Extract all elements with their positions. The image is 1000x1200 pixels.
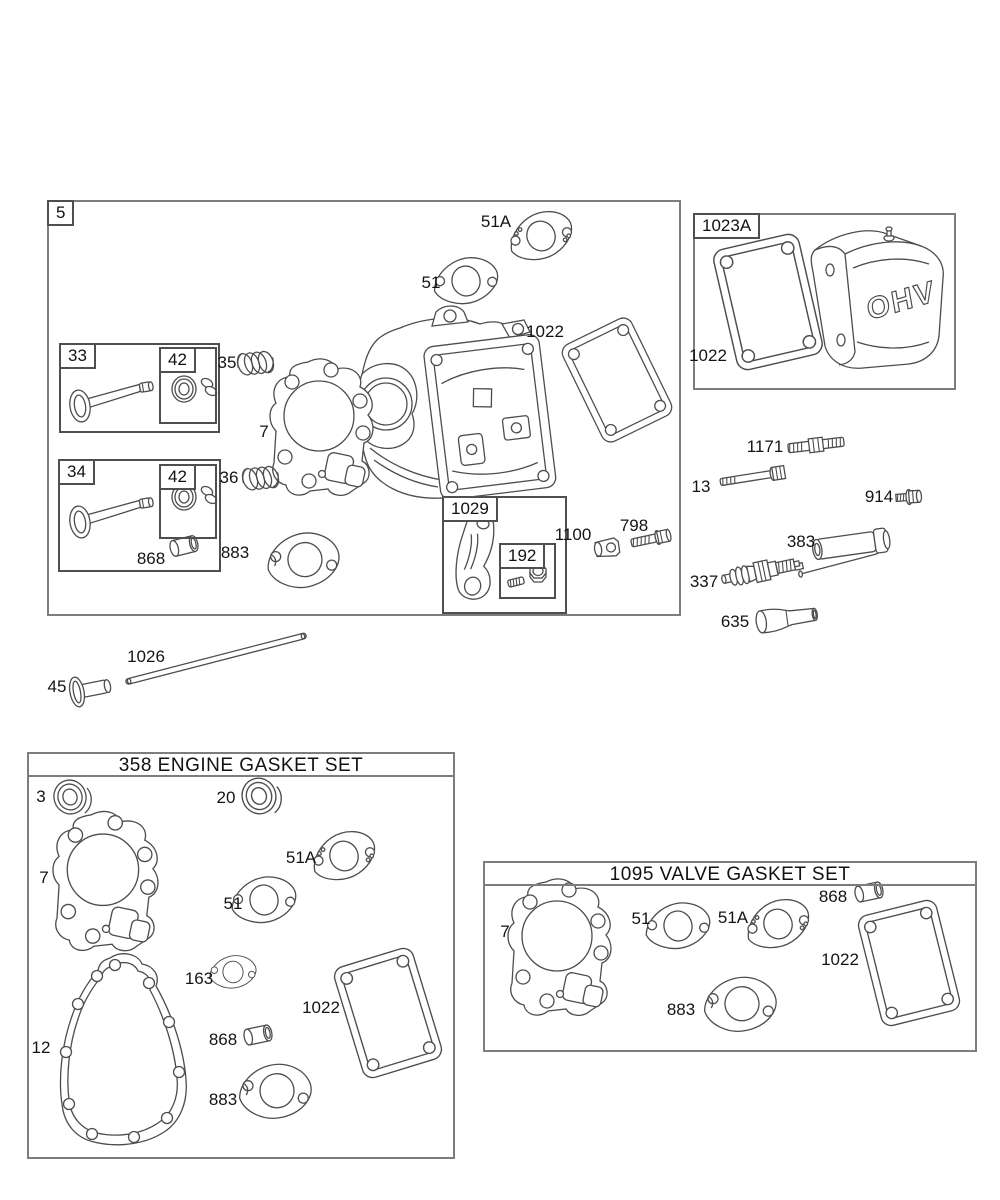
section-label-valve-cover: 1023A	[693, 213, 760, 239]
tappet-45-drawing	[67, 671, 113, 708]
callout-51a-valve-set: 51A	[718, 908, 748, 928]
group-box-intake-seal-kit: 42	[159, 347, 217, 424]
callout-883-engine-set: 883	[209, 1090, 237, 1110]
callout-1026: 1026	[127, 647, 165, 667]
plug-boot-635-drawing	[755, 603, 819, 634]
callout-35: 35	[218, 353, 237, 373]
callout-51-engine-set: 51	[224, 894, 243, 914]
callout-383: 383	[787, 532, 815, 552]
engine-gasket-set-title: 358 ENGINE GASKET SET	[29, 754, 453, 777]
callout-1022-valve-set: 1022	[821, 950, 859, 970]
callout-337: 337	[690, 572, 718, 592]
callout-51-valve-set: 51	[632, 909, 651, 929]
callout-51-head: 51	[422, 273, 441, 293]
spark-plug-337-drawing	[720, 553, 804, 590]
callout-7-engine-set: 7	[39, 868, 48, 888]
callout-883-head: 883	[221, 543, 249, 563]
callout-20: 20	[217, 788, 236, 808]
head-bolt-13-drawing	[719, 466, 785, 489]
rocker-stud-1171-drawing	[787, 435, 844, 456]
callout-1022-cover: 1022	[689, 346, 727, 366]
callout-1100: 1100	[555, 525, 592, 545]
group-label-intake-seal-kit: 42	[159, 347, 196, 373]
callout-7-valve-set: 7	[500, 922, 509, 942]
callout-635: 635	[721, 612, 749, 632]
callout-914: 914	[865, 487, 893, 507]
section-box-engine-gasket-set: 358 ENGINE GASKET SET	[27, 752, 455, 1159]
section-box-valve-cover: 1023A	[693, 213, 956, 390]
section-box-valve-gasket-set: 1095 VALVE GASKET SET	[483, 861, 977, 1052]
callout-868-engine-set: 868	[209, 1030, 237, 1050]
group-label-exhaust-valve: 34	[58, 459, 95, 485]
callout-868-head: 868	[137, 549, 165, 569]
callout-12: 12	[32, 1038, 51, 1058]
engine-parts-diagram: OHV 5 1023A 33 42	[0, 0, 1000, 1200]
screw-914-drawing	[896, 489, 922, 506]
callout-883-valve-set: 883	[667, 1000, 695, 1020]
callout-3: 3	[36, 787, 45, 807]
group-label-rocker-arm: 1029	[442, 496, 498, 522]
callout-51a-head: 51A	[481, 212, 511, 232]
section-label-head-assembly: 5	[47, 200, 74, 226]
callout-36: 36	[220, 468, 239, 488]
callout-163: 163	[185, 969, 213, 989]
callout-868-valve-set: 868	[819, 887, 847, 907]
valve-gasket-set-title: 1095 VALVE GASKET SET	[485, 863, 975, 886]
callout-1022-engine-set: 1022	[302, 998, 340, 1018]
group-label-exhaust-seal-kit: 42	[159, 464, 196, 490]
group-box-exhaust-seal-kit: 42	[159, 464, 217, 539]
callout-45: 45	[48, 677, 67, 697]
group-box-rocker-screw-kit: 192	[499, 543, 556, 599]
callout-51a-engine-set: 51A	[286, 848, 316, 868]
callout-798: 798	[620, 516, 648, 536]
callout-1022-head: 1022	[526, 322, 564, 342]
group-label-intake-valve: 33	[59, 343, 96, 369]
callout-7-head: 7	[259, 422, 268, 442]
callout-1171: 1171	[747, 437, 784, 457]
callout-13: 13	[692, 477, 711, 497]
group-label-rocker-screw-kit: 192	[499, 543, 545, 569]
